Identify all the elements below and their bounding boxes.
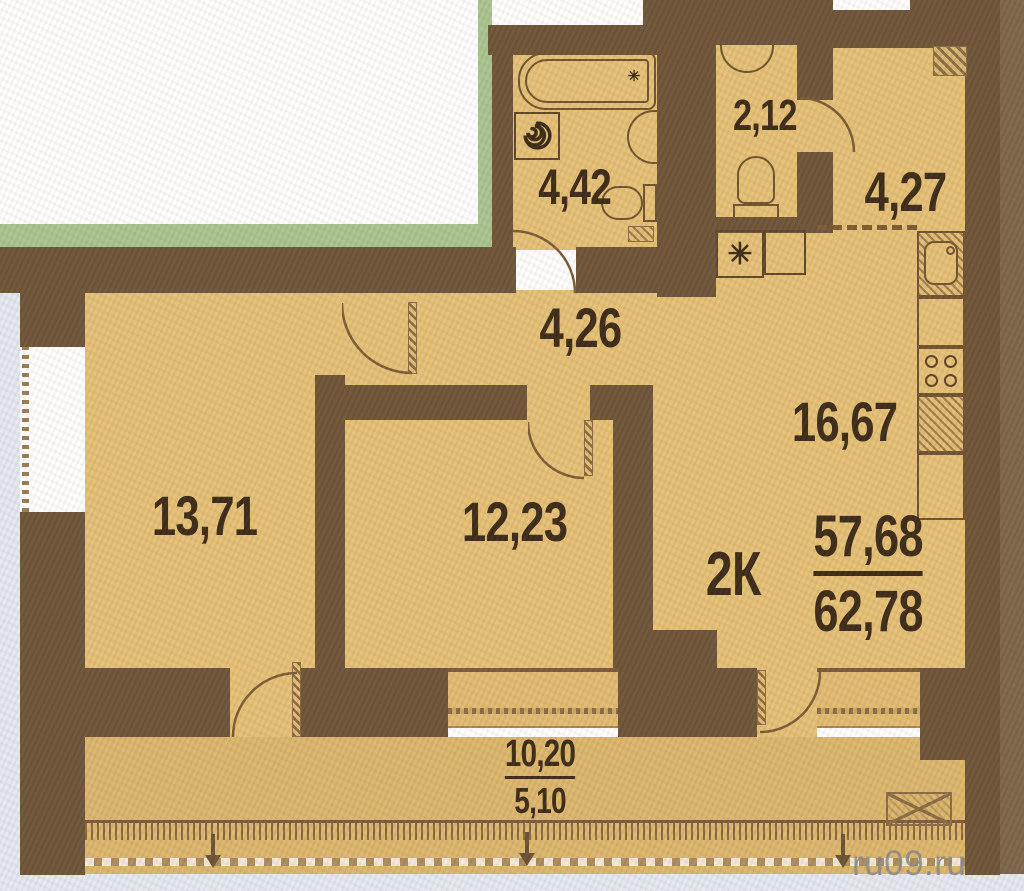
area-label-room-left: 13,71 [115, 488, 295, 544]
floor-door-gap-room-left [315, 293, 345, 375]
wall-segment [20, 293, 85, 347]
opening-arrow-stem [211, 834, 215, 856]
door-arc-room-left [342, 301, 414, 375]
wall-segment [716, 0, 833, 45]
stove-icon [917, 347, 965, 395]
wall-segment [618, 668, 757, 737]
area-label-bathroom: 4,42 [500, 162, 650, 212]
area-label-kitchen: 16,67 [760, 394, 930, 450]
door-arc-room-center [528, 420, 586, 480]
unit-living-area: 57,68 [768, 508, 968, 576]
wall-segment [488, 25, 657, 55]
wall-segment [85, 668, 230, 737]
door-arc-bathroom [511, 229, 577, 295]
floor-plan: ✳ ✳ 4,42 2,12 4,27 4,26 16,67 13,71 12, [0, 0, 1024, 891]
window-frame-ticks [22, 347, 29, 512]
opening-arrow-icon [205, 855, 221, 868]
shaft-square [764, 230, 806, 275]
area-label-wc: 2,12 [715, 94, 815, 138]
wall-segment [0, 247, 516, 293]
window-kitchen-balcony [817, 668, 920, 728]
burner-icon [944, 374, 957, 387]
burner-icon [925, 355, 938, 368]
balcony-area-reduced: 5,10 [478, 783, 603, 819]
door-arc-balcony-left [231, 671, 299, 739]
wall-segment [657, 0, 716, 297]
faucet-star-icon: ✳ [624, 66, 644, 86]
opening-arrow-stem [841, 834, 845, 856]
unit-type-label: 2К [698, 544, 768, 606]
window-sill [448, 708, 618, 714]
kitchen-faucet-icon [946, 246, 955, 255]
window-room-center-balcony [448, 668, 618, 728]
door-arc-balcony-kitchen [758, 670, 822, 734]
entrance-door-hatch [933, 46, 967, 76]
wc-toilet-bowl-icon [737, 156, 775, 204]
wall-segment [920, 668, 1000, 760]
wall-segment [315, 375, 345, 668]
window-sill [817, 708, 920, 714]
burner-icon [925, 374, 938, 387]
area-label-room-center: 12,23 [425, 494, 605, 550]
area-label-hallway: 4,27 [830, 164, 980, 220]
wall-segment [590, 385, 653, 420]
ac-unit-icon [886, 792, 952, 826]
opening-arrow-icon [519, 853, 535, 866]
vent-star-icon: ✳ [718, 232, 762, 276]
wall-segment [492, 25, 513, 293]
bathroom-vent-hatch [628, 226, 654, 242]
balcony-areas: 10,20 5,10 [478, 735, 603, 819]
opening-arrow-stem [525, 832, 529, 854]
opening-arrow-icon [835, 855, 851, 868]
burner-icon [944, 355, 957, 368]
kitchen-counter [917, 297, 965, 347]
washing-machine-icon [514, 112, 560, 160]
wall-segment [613, 420, 653, 668]
unit-total-area: 62,78 [768, 583, 968, 641]
unit-areas: 57,68 62,78 [768, 508, 968, 641]
area-label-corridor: 4,26 [505, 300, 655, 356]
balcony-area-full: 10,20 [478, 735, 603, 779]
wall-segment [797, 152, 833, 217]
window-left-wall [20, 347, 85, 512]
bathtub-icon: ✳ [518, 52, 656, 110]
washer-spiral-icon [517, 114, 558, 157]
scan-edge-right [1000, 0, 1024, 874]
unit-summary: 2К 57,68 62,78 [698, 508, 968, 641]
wall-segment [797, 45, 833, 100]
wc-toilet-tank-icon [733, 204, 779, 220]
watermark: ru09.ru [852, 844, 1020, 884]
floor-room-left [85, 290, 315, 668]
scan-edge-left [0, 290, 20, 891]
open-passage-hall-kitchen [817, 225, 917, 230]
wall-segment [345, 385, 527, 420]
wall-segment [643, 0, 657, 25]
vent-shaft-square: ✳ [716, 230, 764, 278]
exterior-accent-top [0, 224, 492, 247]
wall-segment [300, 668, 448, 737]
wall-segment [20, 512, 85, 875]
